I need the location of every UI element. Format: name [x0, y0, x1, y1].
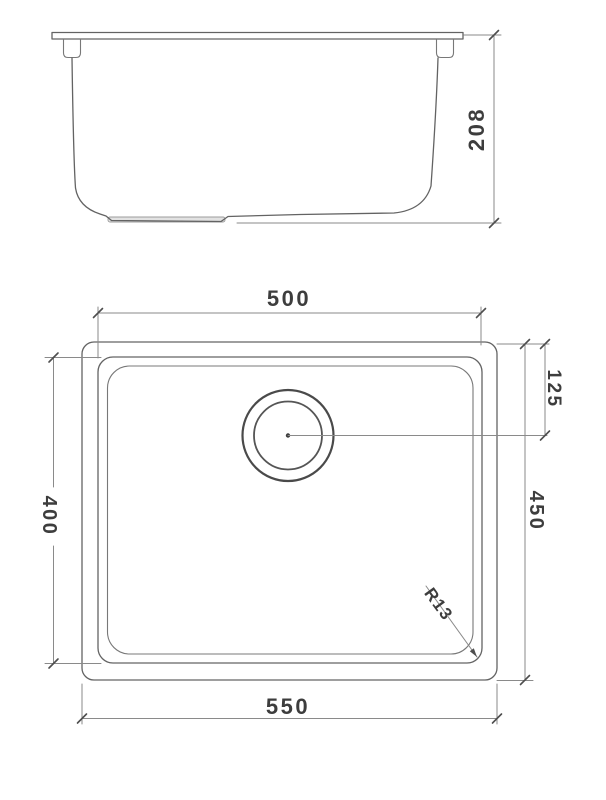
side-view-body: [72, 58, 438, 222]
dim-label-550: 550: [266, 694, 310, 719]
side-view: [52, 33, 463, 223]
dim-label-500: 500: [267, 286, 311, 311]
plan-view: [82, 342, 497, 680]
dimension-depth-208: 208: [237, 31, 501, 228]
drawing-canvas: 208 500: [0, 0, 606, 800]
dim-label-400: 400: [38, 496, 60, 537]
dimension-bowl-width-500: 500: [94, 286, 486, 358]
dimension-bowl-depth-400: 400: [38, 353, 101, 668]
dim-label-208: 208: [464, 107, 489, 151]
plan-bowl-inner-rect: [108, 366, 474, 654]
dimension-outer-depth-450: 450: [497, 340, 547, 685]
sink-technical-drawing: 208 500: [0, 0, 606, 800]
dim-label-450: 450: [525, 491, 547, 532]
plan-bowl-rect: [98, 357, 482, 663]
plan-outer-rect: [82, 342, 497, 680]
dimension-outer-width-550: 550: [78, 684, 502, 724]
dimension-drain-offset-125: 125: [288, 340, 564, 441]
r13-arrowhead: [470, 648, 477, 657]
side-view-right-clip: [437, 39, 454, 58]
side-view-left-clip: [64, 39, 81, 58]
dim-label-125: 125: [543, 369, 564, 408]
dim-label-r13: R13: [420, 584, 456, 624]
side-view-rim: [52, 33, 463, 40]
